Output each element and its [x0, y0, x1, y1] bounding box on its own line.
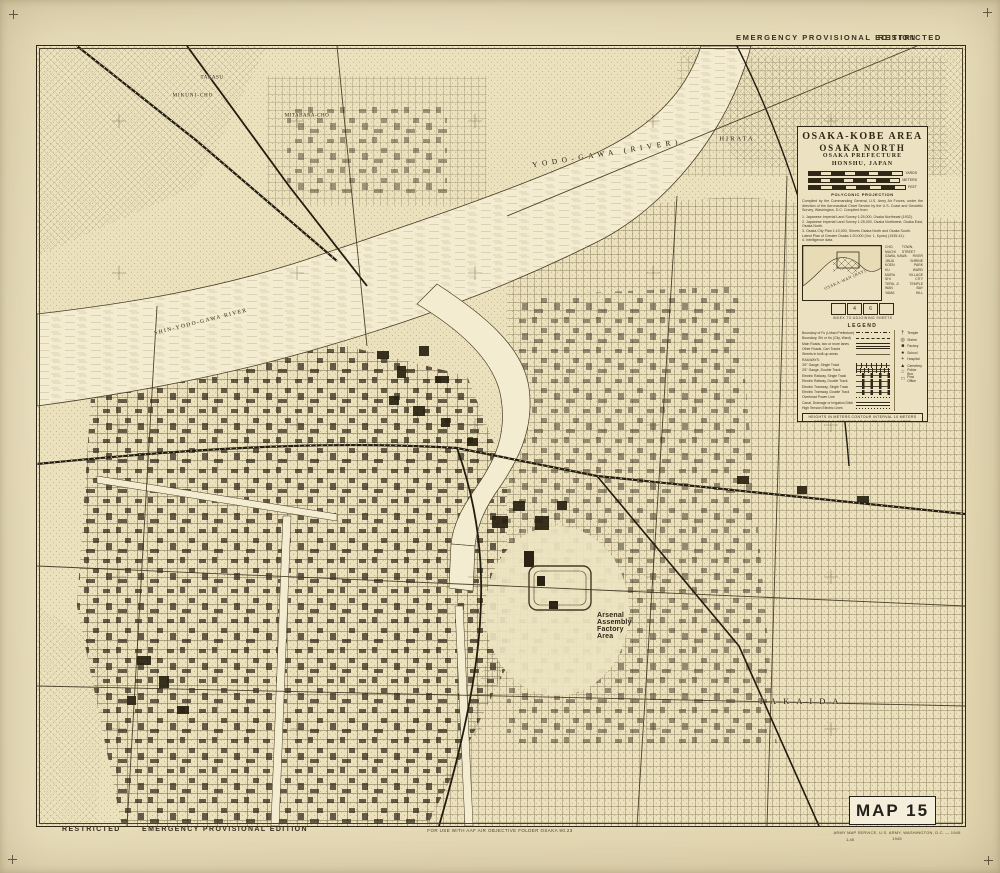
post-office-symbol-icon: □: [898, 376, 907, 382]
scale-bar-segment: [869, 185, 881, 190]
glossary-row: YAMAHILL: [885, 291, 923, 296]
scale-bar: YARDS: [808, 171, 917, 176]
projection-label: POLYCONIC PROJECTION: [802, 192, 923, 197]
map-sheet: EMERGENCY PROVISIONAL EDITION RESTRICTED: [0, 0, 1000, 873]
scale-bar-segment: [854, 178, 866, 183]
scale-bar-segment: [879, 171, 891, 176]
legend-side-label: Shrine: [907, 338, 917, 342]
legend-title: LEGEND: [802, 323, 923, 329]
legend-label: High Tension Electric Lines: [802, 406, 843, 410]
scale-bar-segment: [856, 171, 868, 176]
sources-list: 1. Japanese Imperial Land Survey 1:25,00…: [802, 215, 923, 243]
legend-row: High Tension Electric Lines: [802, 406, 890, 411]
police-box-symbol-icon: ☆: [898, 369, 907, 375]
scale-bar-segment: [857, 185, 869, 190]
legend-label: RAILWAYS:: [802, 358, 820, 362]
legend-note-line2: DEPTHS IN FATHOMS AT CHART LOWEST WATER: [805, 420, 920, 422]
legend-label: Electric Tramway, Single Track: [802, 385, 848, 389]
factory-symbol-icon: ■: [898, 343, 907, 349]
legend-side-label: Cemetery: [907, 364, 922, 368]
scale-bar-segment: [894, 185, 906, 190]
legend-row: Main Roads, two or more lanes: [802, 341, 890, 346]
map-title-line4: HONSHU, JAPAN: [802, 161, 923, 168]
crop-mark-top-right: [983, 8, 992, 17]
legend-side-label: Hospital: [907, 357, 919, 361]
hospital-symbol-icon: +: [898, 356, 907, 362]
source-entry: 2. Japanese Imperial Land Survey 1:25,00…: [802, 220, 923, 229]
legend-symbol-single: [856, 346, 890, 351]
legend-note: HEIGHTS IN METERS CONTOUR INTERVAL 10 ME…: [802, 413, 923, 422]
legend-label: Electric Tramway, Double Track: [802, 390, 849, 394]
map-title-line1: OSAKA-KOBE AREA: [802, 131, 923, 143]
footer-agency-text: ARMY MAP SERVICE, U.S. ARMY, WASHINGTON,…: [833, 830, 960, 835]
glossary-term: CHO, MACHI: [885, 245, 902, 254]
glossary-row: CHO, MACHITOWN, STREET: [885, 245, 923, 254]
header-classification-label: RESTRICTED: [878, 33, 942, 42]
scale-bar-segment: [832, 171, 844, 176]
footer-print-code: 1-45: [846, 837, 854, 842]
legend-label: Canal, Drainage or Irrigation Ditch: [802, 401, 853, 405]
crop-mark-top-left: [9, 10, 18, 19]
glossary-term: YAMA: [885, 291, 894, 296]
legend-symbol-erail: [856, 373, 890, 378]
crop-mark-bottom-left: [8, 855, 17, 864]
scale-bar: FEET: [808, 185, 917, 190]
map-number-box: MAP 15: [849, 796, 936, 825]
scale-bar-segment: [882, 185, 894, 190]
legend-label: Streets in built-up areas: [802, 352, 838, 356]
legend-symbol-list: †Temple◎Shrine■Factory●School+Hospital▲C…: [894, 330, 923, 411]
scale-bar: METERS: [808, 178, 917, 183]
credit-text: Compiled by the Commanding General, U.S.…: [802, 199, 923, 213]
legend-symbol-canal: [856, 400, 890, 405]
legend-row: Boundary, Shi or Ku (City, Ward): [802, 335, 890, 340]
scale-bar-segment: [868, 171, 880, 176]
scale-bar-segment: [808, 178, 820, 183]
scale-bars: YARDSMETERSFEET: [808, 171, 917, 190]
scale-bar-segment: [891, 171, 903, 176]
crop-mark-bottom-right: [984, 856, 993, 865]
legend-row: Canal, Drainage or Irrigation Ditch: [802, 400, 890, 405]
source-entry: 1. Japanese Imperial Land Survey 1:25,00…: [802, 215, 923, 220]
source-entry: 3. Osaka City Plan 1:10,000, Sheets Osak…: [802, 229, 923, 234]
glossary-meaning: HILL: [916, 291, 923, 296]
legend-side-label: Post Office: [907, 375, 923, 383]
legend-label: Main Roads, two or more lanes: [802, 342, 849, 346]
legend-label: Boundary of Fu (Urban Prefecture): [802, 331, 854, 335]
footer-print-year: 1945: [892, 836, 902, 841]
scale-bar-unit: FEET: [908, 185, 917, 189]
legend-side-label: Temple: [907, 331, 918, 335]
index-inset-map: OSAKA-WAN (BAY): [802, 245, 882, 301]
map-title-line3: OSAKA PREFECTURE: [802, 153, 923, 161]
scale-bar-unit: METERS: [902, 178, 917, 182]
legend-symbol-none: [856, 357, 890, 362]
legend-symbol-rail1: [856, 363, 890, 368]
scale-bar-segment: [889, 178, 901, 183]
map-title-line2: OSAKA NORTH: [802, 143, 923, 154]
legend-row: Boundary of Fu (Urban Prefecture): [802, 330, 890, 335]
legend-symbol-dash: [856, 336, 890, 341]
legend-label: Electric Railway, Double Track: [802, 379, 848, 383]
scale-bar-segment: [844, 171, 856, 176]
scale-bar-segment: [820, 178, 832, 183]
legend-symbol-erail: [856, 390, 890, 395]
legend-side-label: School: [907, 351, 917, 355]
legend-symbol-dashdot: [856, 330, 890, 335]
legend-symbol-power: [856, 395, 890, 400]
legend-side-row: □Post Office: [898, 376, 923, 383]
shrine-symbol-icon: ◎: [898, 337, 907, 343]
adjoining-sheet-box: [879, 303, 894, 315]
scale-bar-segment: [843, 178, 855, 183]
legend-row: Electric Tramway, Double Track: [802, 389, 890, 394]
footer-agency-line: ARMY MAP SERVICE, U.S. ARMY, WASHINGTON,…: [812, 830, 982, 842]
adjoining-sheets-caption: INDEX TO ADJOINING SHEETS: [802, 316, 923, 320]
glossary-meaning: TOWN, STREET: [902, 245, 923, 254]
scale-bar-segment: [866, 178, 878, 183]
legend-row: Electric Tramway, Single Track: [802, 384, 890, 389]
legend-symbol-thin: [856, 352, 890, 357]
school-symbol-icon: ●: [898, 350, 907, 356]
legend-label: Electric Railway, Single Track: [802, 374, 846, 378]
legend-symbol-double: [856, 341, 890, 346]
adjoining-sheet-box: [831, 303, 846, 315]
legend-row: Electric Railway, Single Track: [802, 373, 890, 378]
legend-label: Other Roads, Cart Tracks: [802, 347, 840, 351]
legend-symbol-erail: [856, 384, 890, 389]
legend-symbol-rail2: [856, 368, 890, 373]
scale-bar-segment: [820, 185, 832, 190]
adjoining-sheet-box: 6: [863, 303, 878, 315]
scale-bar-segment: [820, 171, 832, 176]
scale-bar-segment: [845, 185, 857, 190]
scale-bar-segment: [833, 185, 845, 190]
scale-bar-segment: [808, 171, 820, 176]
glossary-list: CHO, MACHITOWN, STREETGAWA, KAWARIVERJIN…: [885, 245, 923, 301]
scale-bar-segment: [831, 178, 843, 183]
temple-symbol-icon: †: [898, 330, 907, 336]
cemetery-symbol-icon: ▲: [898, 363, 907, 369]
legend-label: 3'6" Gauge, Double Track: [802, 368, 841, 372]
adjoining-sheet-box: 4: [847, 303, 862, 315]
legend-rows: Boundary of Fu (Urban Prefecture)Boundar…: [802, 330, 890, 411]
legend-symbol-erail: [856, 379, 890, 384]
legend-symbol-power: [856, 406, 890, 411]
legend-row: Electric Railway, Double Track: [802, 379, 890, 384]
legend-label: Overhead Power Line: [802, 395, 835, 399]
legend-label: Boundary, Shi or Ku (City, Ward): [802, 336, 851, 340]
scale-bar-segment: [877, 178, 889, 183]
scale-bar-segment: [808, 185, 820, 190]
scale-bar-unit: YARDS: [905, 171, 917, 175]
legend-label: 3'6" Gauge, Single Track: [802, 363, 839, 367]
adjoining-sheets-row: 46: [802, 303, 923, 315]
legend-side-label: Factory: [907, 344, 918, 348]
source-entry: 4. Intelligence data.: [802, 238, 923, 243]
title-legend-panel: OSAKA-KOBE AREA OSAKA NORTH OSAKA PREFEC…: [797, 126, 928, 422]
